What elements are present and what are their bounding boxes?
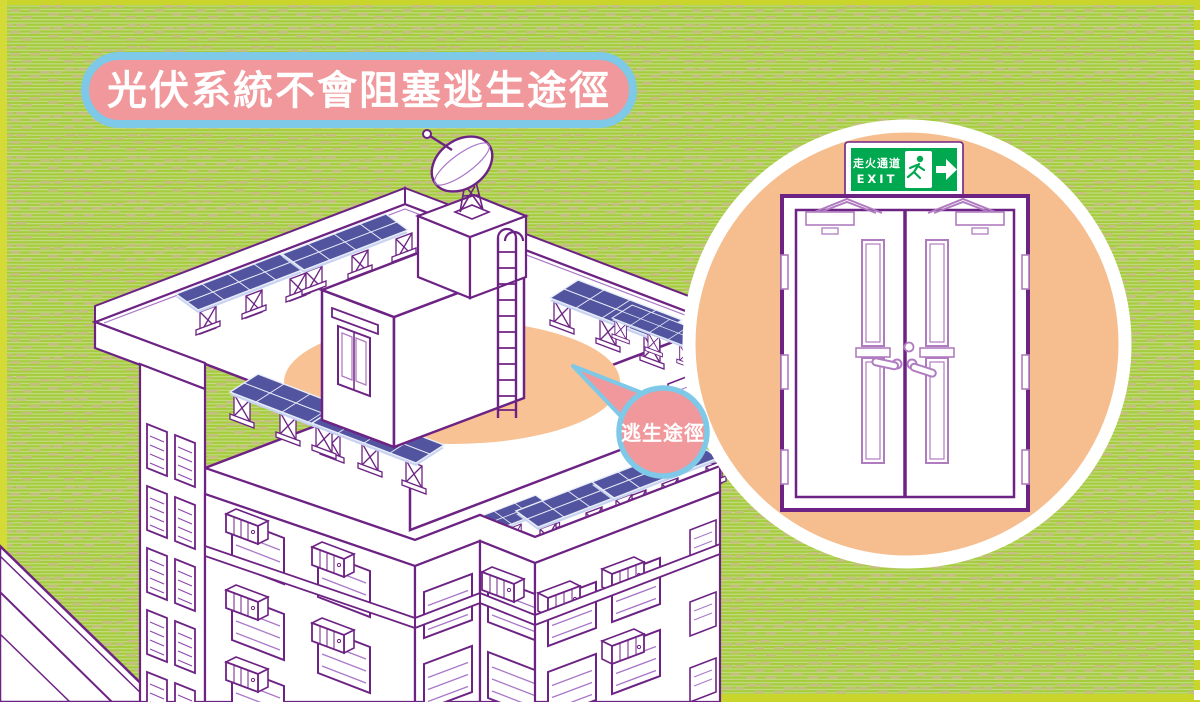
speech-bubble-label: 逃生途徑 (621, 421, 705, 445)
title-banner: 光伏系統不會阻塞逃生途徑 (85, 56, 633, 124)
exit-sign: 走火通道 EXIT (845, 142, 963, 197)
exit-sign-english: EXIT (857, 172, 898, 186)
exit-sign-chinese: 走火通道 (852, 156, 901, 170)
border-strip-top (0, 0, 1200, 5)
fire-door-icon (781, 196, 1029, 510)
poster-canvas: 走火通道 EXIT (0, 0, 1200, 702)
left-facade (140, 364, 205, 702)
door-cylinder (905, 343, 914, 352)
fire-exit-inset: 走火通道 EXIT (689, 126, 1125, 562)
poster-title: 光伏系統不會阻塞逃生途徑 (107, 68, 611, 114)
infographic-poster: 走火通道 EXIT (0, 0, 1200, 702)
